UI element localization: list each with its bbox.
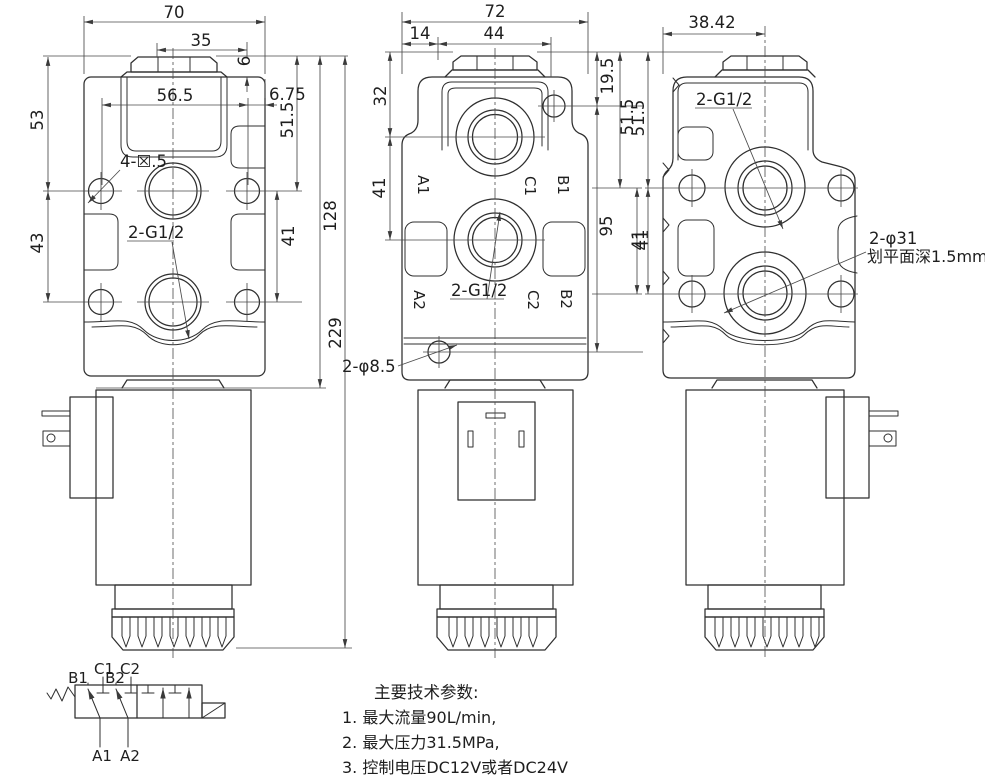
front-view: 70 35 56.5 6.75 6 51.5 53 43 41 128 229 … <box>28 3 352 658</box>
engineering-drawing-page: 70 35 56.5 6.75 6 51.5 53 43 41 128 229 … <box>0 0 985 777</box>
dim-front-edge-offset: 6.75 <box>269 85 306 104</box>
port-face-dimensions: 72 14 44 32 41 19.5 51.5 95 41 2-G1/2 2-… <box>342 2 652 376</box>
dim-pf-step: 14 <box>410 24 431 43</box>
tech-notes-item-1: 1. 最大流量90L/min, <box>342 708 496 727</box>
tech-notes-title: 主要技术参数: <box>374 683 479 702</box>
side-view: 38.42 51.5 41 2-G1/2 2-φ31 划平面深1.5mm <box>629 13 985 658</box>
schematic-label-b1: B1 <box>68 669 88 687</box>
label-side-boss-note: 划平面深1.5mm <box>867 247 985 266</box>
dim-side-51-5: 51.5 <box>629 100 648 137</box>
port-face-solenoid <box>418 380 573 650</box>
dim-front-width: 70 <box>164 3 185 22</box>
dim-pf-nut-span: 44 <box>484 24 505 43</box>
side-view-solenoid <box>686 380 898 650</box>
schematic-label-a2: A2 <box>120 747 140 765</box>
dim-front-hole-span: 56.5 <box>157 86 194 105</box>
label-side-ports: 2-G1/2 <box>696 90 752 109</box>
dim-side-width: 38.42 <box>688 13 735 32</box>
label-front-mount-holes: 4-☒.5 <box>120 152 167 171</box>
dim-pf-32: 32 <box>371 86 390 107</box>
valve-schematic: B1 C1 B2 C2 A1 A2 <box>47 660 225 765</box>
side-view-dimensions: 38.42 51.5 41 2-G1/2 2-φ31 划平面深1.5mm <box>629 13 985 313</box>
dim-front-41: 41 <box>279 226 298 247</box>
side-view-body <box>663 56 857 378</box>
valve-drawing-canvas: 70 35 56.5 6.75 6 51.5 53 43 41 128 229 … <box>0 0 985 777</box>
label-front-ports: 2-G1/2 <box>128 223 184 242</box>
tech-notes-item-3: 3. 控制电压DC12V或者DC24V <box>342 758 568 777</box>
dim-front-229: 229 <box>326 317 345 349</box>
port-label-c1: C1 <box>521 176 539 196</box>
label-side-boss: 2-φ31 <box>869 229 917 248</box>
label-pf-drain-holes: 2-φ8.5 <box>342 357 396 376</box>
dim-pf-95: 95 <box>597 216 616 237</box>
dim-pf-19-5: 19.5 <box>598 58 617 95</box>
dim-front-51-5: 51.5 <box>278 102 297 139</box>
tech-notes-item-2: 2. 最大压力31.5MPa, <box>342 733 500 752</box>
port-label-a2: A2 <box>410 290 428 310</box>
dim-front-128: 128 <box>321 200 340 232</box>
front-view-dimensions: 70 35 56.5 6.75 6 51.5 53 43 41 128 229 … <box>28 3 352 648</box>
dim-front-half-width: 35 <box>191 31 212 50</box>
dim-side-41: 41 <box>629 230 648 251</box>
dim-front-nut-height: 6 <box>235 56 254 67</box>
schematic-label-a1: A1 <box>92 747 112 765</box>
port-label-a1: A1 <box>414 175 432 195</box>
port-label-b1: B1 <box>554 175 572 195</box>
spring-symbol <box>47 687 75 701</box>
port-label-c2: C2 <box>524 290 542 310</box>
tech-notes: 主要技术参数: 1. 最大流量90L/min, 2. 最大压力31.5MPa, … <box>342 683 568 777</box>
front-view-solenoid <box>42 380 251 650</box>
dim-front-53: 53 <box>28 110 47 131</box>
dim-pf-width: 72 <box>485 2 506 21</box>
port-face-view: 72 14 44 32 41 19.5 51.5 95 41 2-G1/2 2-… <box>342 2 652 658</box>
dim-front-43: 43 <box>28 233 47 254</box>
dim-pf-41: 41 <box>370 178 389 199</box>
label-pf-ports: 2-G1/2 <box>451 281 507 300</box>
port-label-b2: B2 <box>557 289 575 309</box>
schematic-label-c2: C2 <box>120 660 140 678</box>
